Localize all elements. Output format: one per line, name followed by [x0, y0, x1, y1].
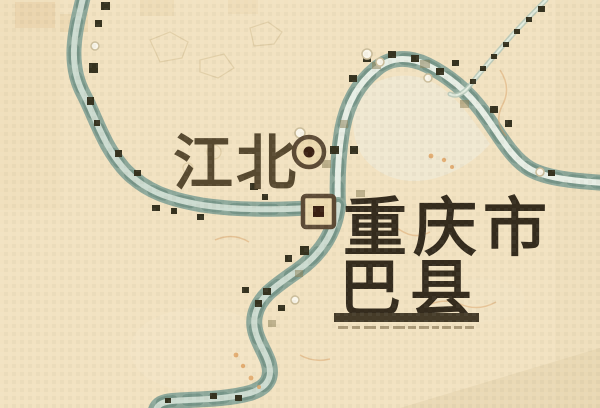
map-illustration: 江北 重庆市 巴县 — [0, 0, 600, 408]
mosaic-overlay — [0, 0, 600, 408]
map-canvas[interactable]: 江北 重庆市 巴县 — [0, 0, 600, 408]
